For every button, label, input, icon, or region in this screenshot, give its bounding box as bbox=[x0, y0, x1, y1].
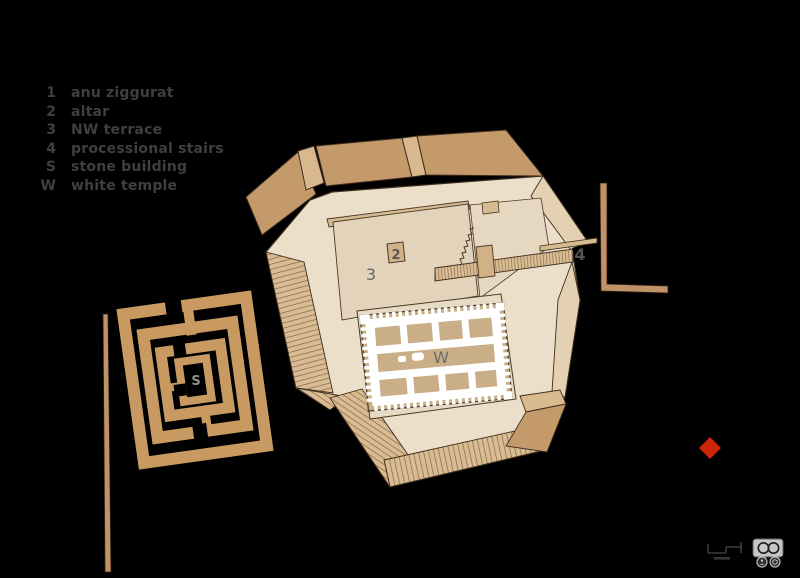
site-plan-canvas: 2 3 4 S W 1 anu ziggurat 2 bbox=[0, 0, 800, 578]
legend: 1 anu ziggurat 2 altar 3 NW terrace 4 pr… bbox=[36, 85, 224, 197]
legend-item-anu-ziggurat: 1 anu ziggurat bbox=[36, 85, 224, 104]
label-nw-terrace: 3 bbox=[366, 265, 376, 284]
red-diamond-marker bbox=[699, 437, 721, 459]
scale-bar-icon bbox=[708, 542, 741, 560]
label-stone-building: S bbox=[191, 374, 200, 389]
north-rim-facet bbox=[316, 138, 412, 186]
legend-label: processional stairs bbox=[71, 141, 224, 157]
temple-court-feature bbox=[412, 352, 425, 361]
legend-key: 4 bbox=[36, 141, 56, 157]
cc-by-icon bbox=[757, 557, 767, 567]
legend-label: anu ziggurat bbox=[71, 85, 174, 101]
legend-label: stone building bbox=[71, 159, 187, 175]
east-excavation-wall bbox=[600, 183, 668, 293]
legend-key: S bbox=[36, 159, 56, 175]
legend-item-white-temple: W white temple bbox=[36, 178, 224, 197]
scale-bar-caption bbox=[714, 557, 730, 560]
legend-label: altar bbox=[71, 104, 109, 120]
label-altar: 2 bbox=[391, 248, 400, 263]
legend-item-nw-terrace: 3 NW terrace bbox=[36, 122, 224, 141]
legend-item-altar: 2 altar bbox=[36, 104, 224, 123]
legend-label: NW terrace bbox=[71, 122, 162, 138]
temple-court-feature bbox=[398, 356, 406, 363]
label-processional-stairs: 4 bbox=[574, 245, 585, 264]
legend-key: 3 bbox=[36, 122, 56, 138]
cc-sa-icon bbox=[770, 557, 780, 567]
cc-license-badge-icon[interactable] bbox=[753, 539, 783, 567]
legend-key: W bbox=[36, 178, 56, 194]
north-rim-facet bbox=[417, 130, 543, 176]
legend-item-processional-stairs: 4 processional stairs bbox=[36, 141, 224, 160]
legend-item-stone-building: S stone building bbox=[36, 159, 224, 178]
ramp-landing bbox=[476, 245, 495, 278]
legend-key: 1 bbox=[36, 85, 56, 101]
label-white-temple: W bbox=[433, 348, 449, 367]
terrace-wall-stub bbox=[482, 201, 499, 214]
west-excavation-line bbox=[103, 314, 111, 572]
legend-key: 2 bbox=[36, 104, 56, 120]
legend-label: white temple bbox=[71, 178, 177, 194]
